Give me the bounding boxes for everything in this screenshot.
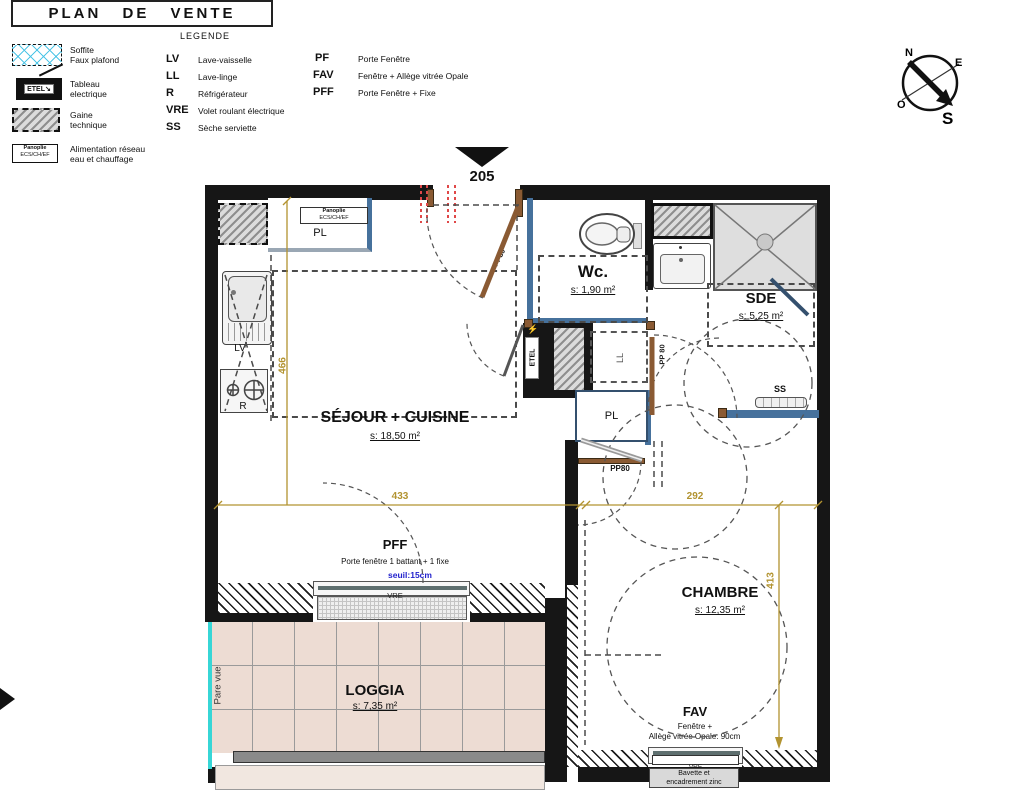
gaine-label: Gaine technique (70, 111, 107, 131)
dashed-lines (225, 205, 662, 745)
panoplie-label: Alimentation réseau eau et chauffage (70, 145, 145, 165)
left-edge-arrow (0, 688, 15, 710)
entrance-triangle (455, 147, 509, 167)
arrow-glyph: ↘ (45, 86, 51, 93)
legend-abbr-pff: PFF (313, 86, 334, 98)
toilet (580, 214, 634, 254)
legend-abbr-ss: SS (166, 121, 181, 133)
chambre-door-leaf-inner (581, 440, 642, 460)
legend-label-lv: Lave-vaisselle (198, 55, 252, 65)
compass-e: E (955, 57, 962, 69)
legend-abbr-pf: PF (315, 52, 329, 64)
title-box: PLAN DE VENTE (11, 0, 273, 27)
shower-door-leaf (771, 279, 808, 315)
soffite-swatch (12, 44, 62, 66)
unit-number: 205 (455, 169, 509, 186)
compass-n: N (905, 47, 913, 59)
entry-door-leaf (482, 207, 518, 297)
wc-door-leaf (504, 325, 523, 376)
legend-heading: LEGENDE (180, 31, 270, 41)
tableau-label: Tableau electrique (70, 80, 107, 100)
compass-o: O (897, 99, 906, 111)
gaine-swatch (12, 108, 60, 132)
legend-abbr-lv: LV (166, 53, 179, 65)
legend-label-r: Réfrigérateur (198, 89, 248, 99)
legend-abbr-vre: VRE (166, 104, 189, 116)
etel-swatch: ETEL↘ (16, 78, 62, 100)
compass-needle (909, 62, 943, 96)
legend-label-ll: Lave-linge (198, 72, 237, 82)
legend-abbr-ll: LL (166, 70, 179, 82)
panoplie-swatch: Panoplie ECS/CH/EF (12, 144, 58, 163)
legend-label-vre: Volet roulant électrique (198, 106, 284, 116)
legend-abbr-r: R (166, 87, 174, 99)
legend-label-ss: Sèche serviette (198, 123, 257, 133)
etel-swatch-tag: ETEL↘ (24, 84, 54, 94)
door-arcs (323, 208, 737, 583)
page-title: PLAN DE VENTE (48, 5, 235, 22)
entry-red-marks (421, 185, 455, 223)
legend-abbr-fav: FAV (313, 69, 334, 81)
plan-graphics (205, 185, 830, 790)
legend-label-pf: Porte Fenêtre (358, 54, 410, 64)
soffite-label: Soffite Faux plafond (70, 46, 119, 66)
shower-drain (757, 234, 773, 250)
compass-s: S (942, 109, 953, 128)
legend-label-fav: Fenêtre + Allège vitrée Opale (358, 71, 468, 81)
dimension-lines (214, 197, 822, 745)
compass-rose: N E O S (885, 38, 980, 133)
dim-right-arrowhead (775, 737, 783, 749)
floor-plan: Panoplie ECS/CH/EF PL LV R ⚡ ETEL LL PL … (205, 185, 830, 790)
legend-label-pff: Porte Fenêtre + Fixe (358, 88, 436, 98)
turning-circles (603, 319, 812, 737)
